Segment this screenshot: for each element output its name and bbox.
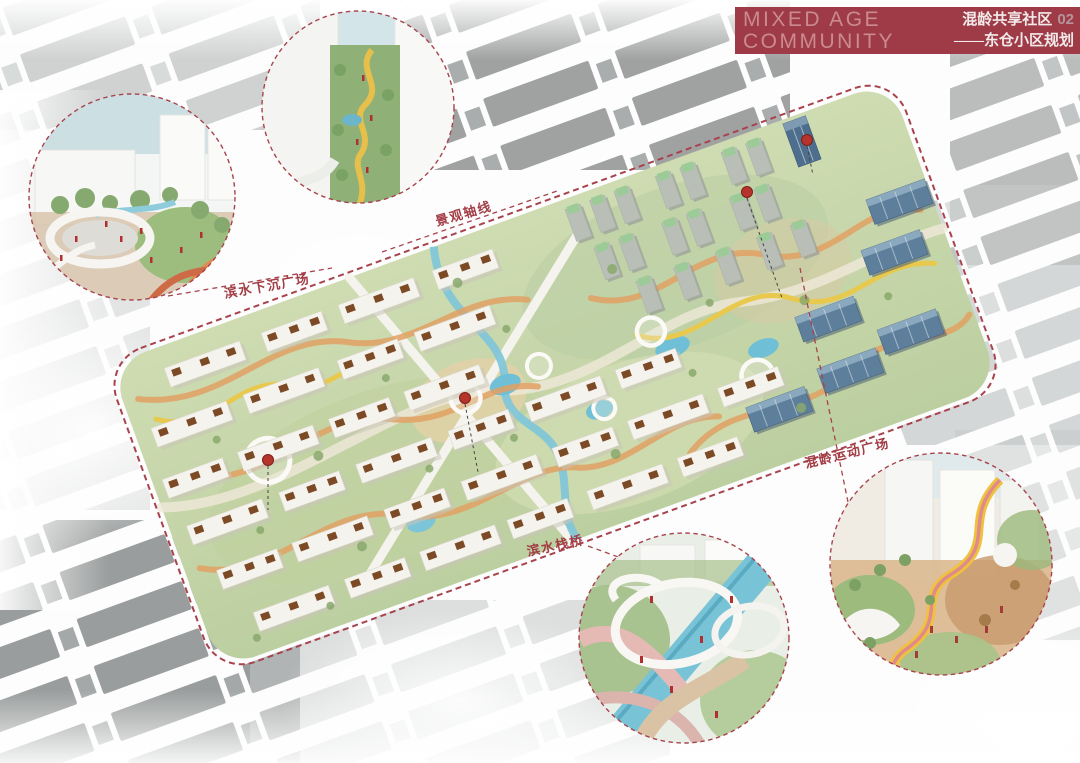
page-number: 02 xyxy=(1057,11,1074,28)
title-chinese-subtitle: ——东仓小区规划 xyxy=(954,31,1074,52)
title-block: MIXED AGE COMMUNITY 混龄共享社区02 ——东仓小区规划 xyxy=(735,7,1080,54)
title-english-line1: MIXED AGE xyxy=(743,9,895,31)
title-english-line2: COMMUNITY xyxy=(743,31,895,53)
title-english: MIXED AGE COMMUNITY xyxy=(743,9,895,53)
masterplan-graphic: 滨水下沉广场 景观轴线 滨水栈桥 混龄运动广场 xyxy=(0,0,1080,763)
title-chinese: 混龄共享社区02 ——东仓小区规划 xyxy=(954,9,1074,52)
callout-landscape-axis xyxy=(262,11,455,206)
title-chinese-main: 混龄共享社区 xyxy=(962,12,1052,28)
title-chinese-line1: 混龄共享社区02 xyxy=(954,9,1074,31)
presentation-board: 滨水下沉广场 景观轴线 滨水栈桥 混龄运动广场 xyxy=(0,0,1080,763)
label-landscape-axis: 景观轴线 xyxy=(434,198,494,228)
